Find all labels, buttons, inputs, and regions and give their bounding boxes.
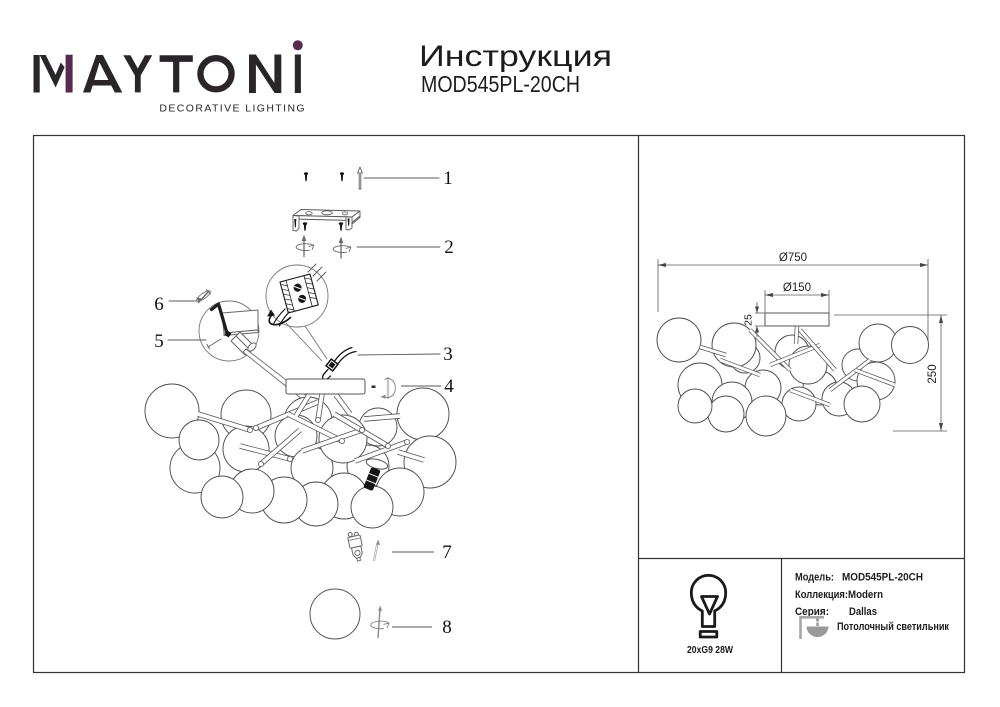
svg-text:4: 4	[444, 376, 454, 397]
svg-text:Коллекция:: Коллекция:	[795, 589, 848, 601]
svg-text:6: 6	[154, 294, 164, 315]
svg-text:MOD545PL-20CH: MOD545PL-20CH	[421, 71, 580, 97]
svg-text:1: 1	[443, 168, 453, 189]
svg-text:Потолочный светильник: Потолочный светильник	[837, 621, 949, 633]
svg-text:MOD545PL-20CH: MOD545PL-20CH	[842, 572, 923, 584]
svg-text:2: 2	[444, 237, 454, 258]
svg-text:25: 25	[743, 314, 755, 326]
svg-text:Modern: Modern	[848, 589, 883, 601]
svg-text:Ø150: Ø150	[783, 282, 811, 294]
svg-text:Dallas: Dallas	[849, 606, 877, 618]
svg-text:250: 250	[927, 364, 939, 383]
svg-text:Инструкция: Инструкция	[419, 40, 612, 73]
svg-text:20xG9 28W: 20xG9 28W	[687, 645, 733, 656]
svg-text:Модель:: Модель:	[795, 572, 834, 584]
svg-text:7: 7	[442, 542, 452, 563]
svg-text:DECORATIVE LIGHTING: DECORATIVE LIGHTING	[159, 103, 306, 115]
svg-text:Ø750: Ø750	[779, 252, 807, 264]
svg-text:8: 8	[442, 617, 452, 638]
svg-text:3: 3	[443, 344, 453, 365]
svg-text:5: 5	[154, 331, 164, 352]
